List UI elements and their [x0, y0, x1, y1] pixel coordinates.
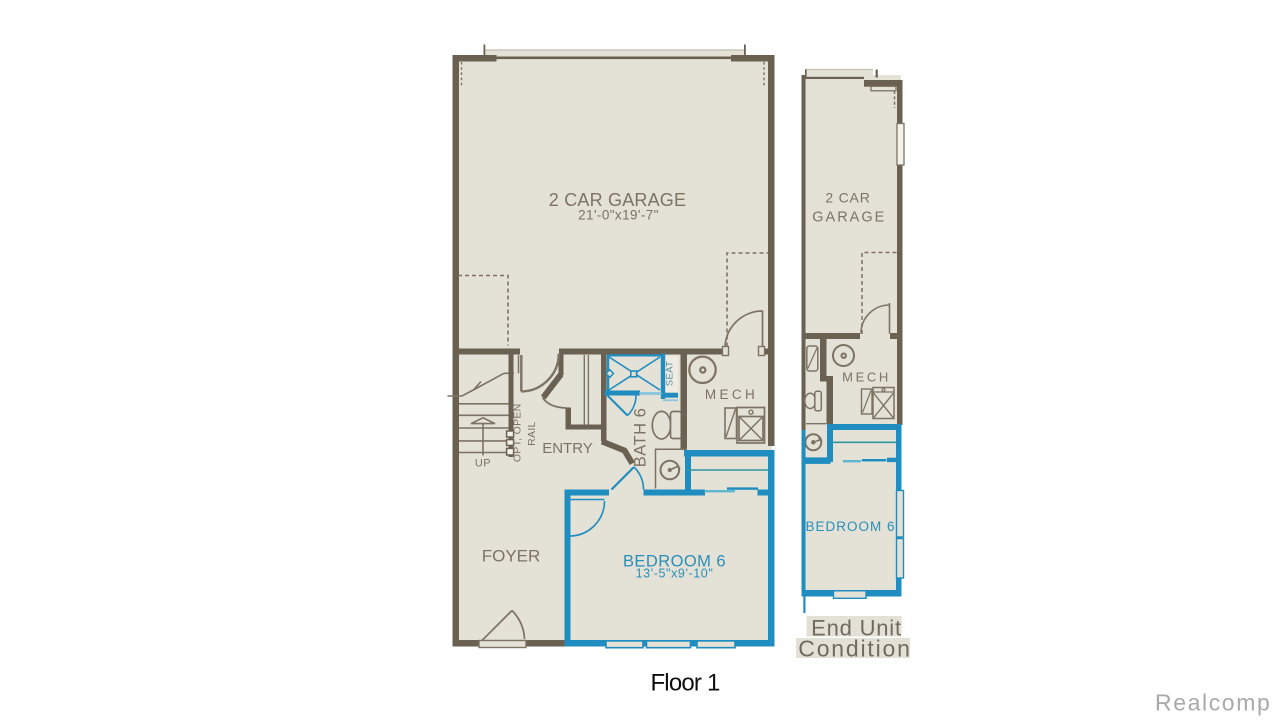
svg-text:13'-5"x9'-10": 13'-5"x9'-10"	[636, 567, 714, 581]
svg-text:MECH: MECH	[705, 387, 758, 402]
svg-text:BEDROOM 6: BEDROOM 6	[805, 519, 895, 534]
svg-text:2 CAR: 2 CAR	[825, 190, 870, 206]
svg-text:ENTRY: ENTRY	[542, 440, 593, 457]
svg-text:21'-0"x19'-7": 21'-0"x19'-7"	[578, 208, 659, 223]
svg-text:UP: UP	[475, 458, 491, 470]
svg-text:OPT, OPEN: OPT, OPEN	[512, 403, 524, 462]
svg-text:Condition: Condition	[798, 636, 911, 662]
svg-text:Realcomp: Realcomp	[1155, 690, 1271, 716]
svg-text:GARAGE: GARAGE	[812, 210, 886, 226]
svg-text:Floor 1: Floor 1	[650, 670, 720, 697]
svg-text:BATH 6: BATH 6	[632, 408, 650, 468]
svg-text:RAIL: RAIL	[526, 421, 538, 446]
svg-text:MECH: MECH	[842, 370, 891, 385]
svg-text:FOYER: FOYER	[482, 547, 541, 566]
svg-text:SEAT: SEAT	[665, 361, 676, 386]
